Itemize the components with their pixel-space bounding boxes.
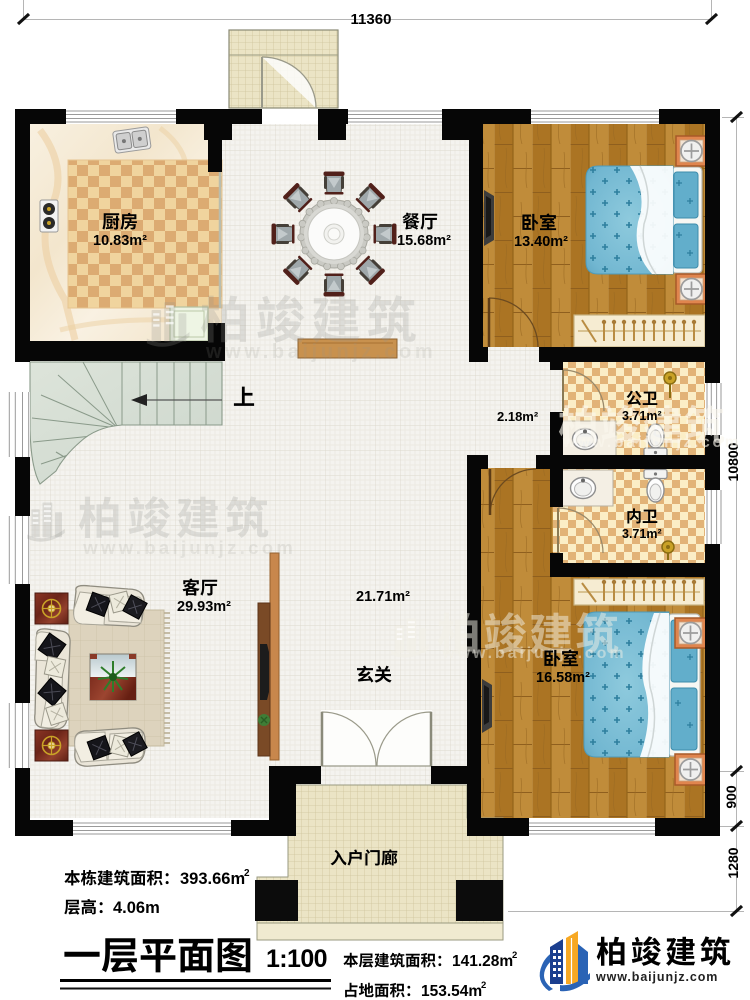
svg-text:21.71m²: 21.71m² <box>356 589 410 605</box>
svg-text:4.06m: 4.06m <box>113 899 160 917</box>
svg-text:13.40m²: 13.40m² <box>514 234 568 250</box>
svg-text:www.baijunjz.com: www.baijunjz.com <box>562 434 741 451</box>
svg-text:2: 2 <box>512 950 517 961</box>
svg-text:www.baijunjz.com: www.baijunjz.com <box>441 645 626 662</box>
svg-text:1280: 1280 <box>725 847 741 878</box>
svg-text:2: 2 <box>481 980 486 991</box>
svg-text:www.baijunjz.com: www.baijunjz.com <box>205 341 436 363</box>
svg-text:153.54m: 153.54m <box>421 983 482 1000</box>
svg-text:1:100: 1:100 <box>266 945 327 973</box>
svg-text:3.71m²: 3.71m² <box>622 527 662 541</box>
svg-text:16.58m²: 16.58m² <box>536 670 590 686</box>
svg-text:2.18m²: 2.18m² <box>497 409 539 424</box>
svg-text:141.28m: 141.28m <box>452 953 513 970</box>
svg-text:3.71m²: 3.71m² <box>622 409 662 423</box>
svg-text:15.68m²: 15.68m² <box>397 233 451 249</box>
svg-text:2: 2 <box>244 868 250 879</box>
svg-text:900: 900 <box>723 785 739 809</box>
svg-text:www.baijunjz.com: www.baijunjz.com <box>82 537 296 558</box>
svg-text:10.83m²: 10.83m² <box>93 233 147 249</box>
svg-text:393.66m: 393.66m <box>180 870 245 888</box>
svg-text:11360: 11360 <box>351 11 392 28</box>
svg-text:29.93m²: 29.93m² <box>177 599 231 615</box>
svg-text:www.baijunjz.com: www.baijunjz.com <box>595 970 718 984</box>
